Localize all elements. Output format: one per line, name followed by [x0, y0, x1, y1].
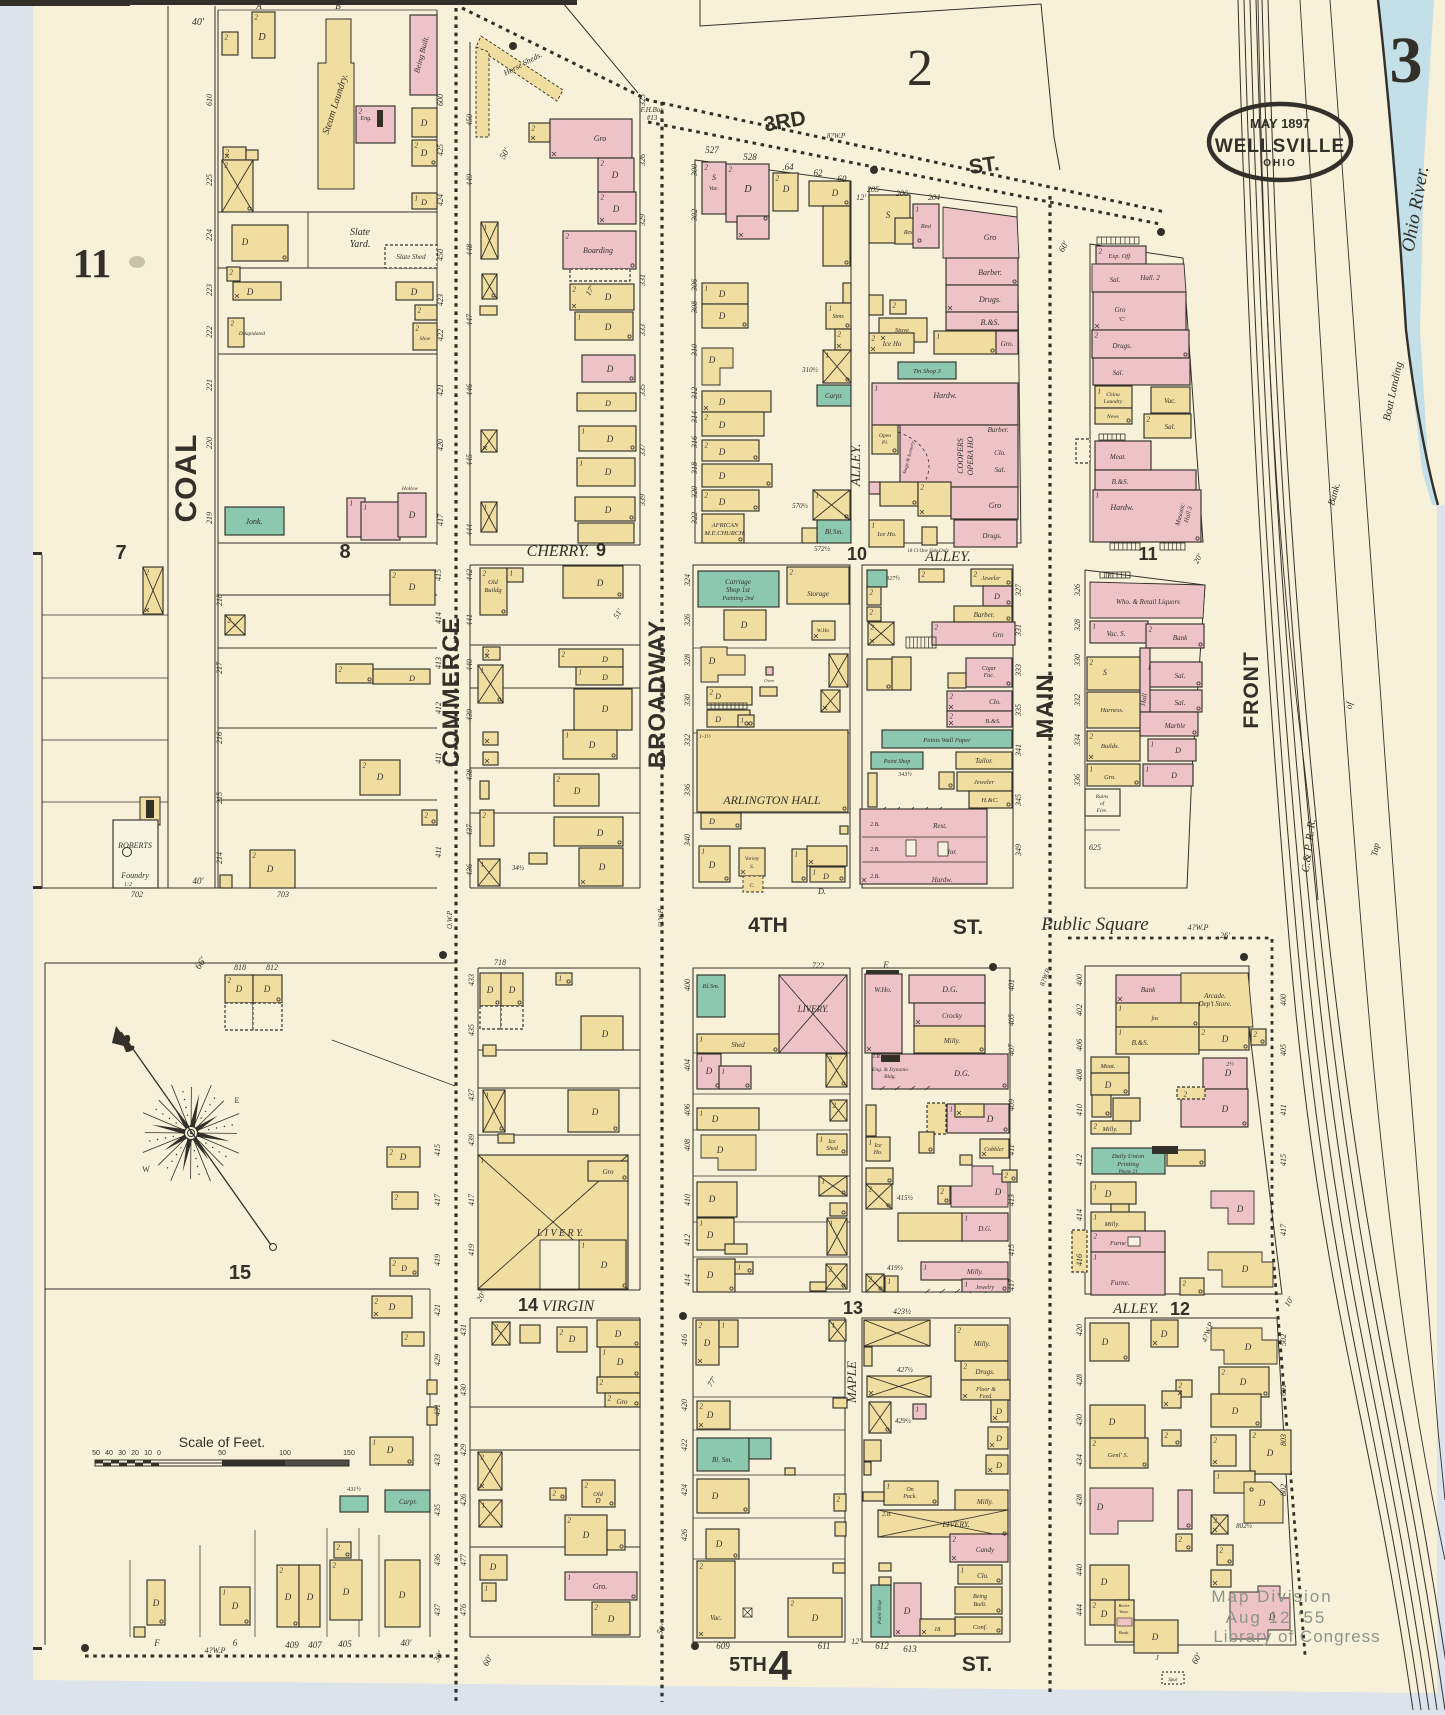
svg-text:407: 407: [308, 1640, 322, 1650]
svg-text:12: 12: [1170, 1299, 1190, 1319]
svg-text:D: D: [1151, 1632, 1159, 1642]
svg-text:1: 1: [1094, 1184, 1098, 1192]
svg-text:ARLINGTON HALL: ARLINGTON HALL: [722, 793, 821, 807]
svg-text:2: 2: [390, 1149, 394, 1157]
svg-text:1: 1: [481, 1157, 485, 1165]
svg-text:Tailor.: Tailor.: [975, 757, 993, 765]
svg-text:1: 1: [486, 1092, 490, 1100]
svg-text:1: 1: [700, 1110, 704, 1118]
svg-text:D: D: [1241, 1264, 1249, 1274]
svg-text:2: 2: [230, 269, 234, 277]
svg-text:450: 450: [465, 114, 474, 126]
svg-text:D: D: [1160, 1329, 1168, 1339]
svg-text:Eng. & Dynamo: Eng. & Dynamo: [871, 1067, 908, 1073]
svg-text:400: 400: [1075, 974, 1084, 986]
svg-text:Genl' S.: Genl' S.: [1108, 1452, 1129, 1459]
svg-text:1: 1: [482, 1502, 486, 1510]
svg-text:Spur: Spur: [1168, 1678, 1178, 1683]
svg-text:349: 349: [1014, 844, 1023, 857]
svg-text:D: D: [616, 1357, 624, 1367]
svg-text:601: 601: [1279, 1384, 1288, 1396]
svg-text:2: 2: [1222, 1369, 1226, 1377]
svg-text:60: 60: [838, 174, 848, 184]
svg-text:408: 408: [1075, 1069, 1084, 1081]
svg-text:D: D: [1224, 1068, 1232, 1078]
svg-text:330: 330: [683, 694, 692, 707]
svg-text:50: 50: [218, 1450, 226, 1457]
svg-text:2: 2: [869, 1276, 873, 1284]
svg-text:336: 336: [683, 784, 692, 797]
svg-text:D: D: [604, 322, 612, 332]
svg-text:314: 314: [690, 411, 699, 424]
svg-text:ST.: ST.: [962, 1653, 992, 1676]
svg-text:D: D: [573, 786, 581, 796]
svg-text:1: 1: [1148, 664, 1152, 672]
svg-text:414: 414: [434, 612, 443, 624]
svg-text:2: 2: [1149, 626, 1153, 634]
svg-text:Yard.: Yard.: [350, 239, 371, 250]
svg-text:449: 449: [465, 174, 474, 186]
svg-text:1: 1: [872, 522, 876, 530]
svg-text:331: 331: [1014, 624, 1023, 637]
svg-text:2: 2: [481, 1454, 485, 1462]
svg-text:ST.: ST.: [967, 152, 1000, 179]
svg-text:419: 419: [433, 1254, 442, 1266]
svg-text:300: 300: [690, 164, 699, 177]
svg-text:D: D: [410, 287, 418, 297]
svg-text:Jonk.: Jonk.: [245, 517, 262, 526]
svg-text:Tin Shop 3: Tin Shop 3: [913, 368, 942, 375]
svg-text:334: 334: [1073, 734, 1082, 747]
svg-text:1: 1: [1119, 1029, 1123, 1037]
svg-text:Barber.: Barber.: [978, 268, 1002, 277]
svg-text:D: D: [486, 985, 494, 995]
svg-text:Milly.: Milly.: [976, 1498, 993, 1506]
svg-text:Bank: Bank: [1173, 634, 1188, 642]
svg-text:Furne: Furne: [1109, 1240, 1126, 1247]
svg-text:411: 411: [1279, 1104, 1288, 1115]
svg-text:14: 14: [518, 1295, 538, 1315]
svg-text:2: 2: [146, 569, 150, 577]
svg-text:D: D: [235, 984, 243, 994]
svg-text:D: D: [241, 237, 249, 247]
svg-text:D: D: [708, 656, 716, 666]
svg-text:11: 11: [1138, 544, 1157, 564]
svg-text:COMMERCE: COMMERCE: [438, 617, 465, 768]
svg-text:S: S: [886, 210, 891, 220]
svg-text:415: 415: [433, 1144, 442, 1156]
svg-text:Gro: Gro: [989, 501, 1002, 510]
svg-text:D: D: [1100, 1609, 1108, 1619]
svg-text:435: 435: [433, 1504, 442, 1516]
svg-text:2: 2: [974, 571, 978, 579]
svg-text:D: D: [1170, 771, 1177, 780]
svg-text:.64: .64: [782, 162, 794, 172]
svg-text:Harness.: Harness.: [1099, 707, 1124, 714]
svg-text:219: 219: [205, 512, 214, 524]
svg-text:Oven: Oven: [764, 678, 774, 683]
svg-text:6: 6: [233, 1638, 238, 1648]
svg-text:MAIN: MAIN: [1032, 673, 1059, 738]
svg-text:2: 2: [393, 572, 397, 580]
svg-text:D: D: [386, 1445, 394, 1455]
svg-text:2: 2: [1184, 1091, 1188, 1099]
svg-text:2: 2: [1090, 733, 1094, 741]
svg-text:Sal.: Sal.: [1175, 699, 1186, 707]
svg-text:D: D: [703, 1338, 711, 1348]
svg-text:415½: 415½: [897, 1194, 914, 1202]
svg-text:610: 610: [205, 94, 214, 106]
svg-text:335: 335: [638, 384, 647, 397]
svg-text:430: 430: [459, 1384, 468, 1396]
svg-text:8: 8: [339, 541, 350, 563]
svg-text:L I V E R Y.: L I V E R Y.: [536, 1228, 584, 1239]
svg-text:Gro.: Gro.: [1104, 774, 1116, 781]
svg-text:D: D: [995, 1434, 1002, 1443]
svg-text:Gro: Gro: [984, 233, 997, 242]
svg-text:2: 2: [729, 166, 733, 174]
svg-text:2.B.: 2.B.: [870, 874, 880, 880]
svg-text:2: 2: [1183, 1280, 1187, 1288]
svg-text:1: 1: [832, 1322, 836, 1330]
svg-text:2: 2: [416, 325, 420, 333]
svg-text:40': 40': [192, 17, 205, 28]
svg-text:1: 1: [700, 1036, 704, 1044]
svg-text:2: 2: [870, 589, 874, 597]
svg-text:343½: 343½: [897, 771, 912, 778]
svg-text:2: 2: [1090, 659, 1094, 667]
svg-text:D: D: [718, 447, 726, 457]
svg-text:H.&C.: H.&C.: [980, 797, 999, 804]
svg-text:409: 409: [285, 1640, 299, 1650]
svg-text:1: 1: [829, 305, 833, 313]
svg-text:Milly.: Milly.: [943, 1037, 960, 1045]
svg-text:2: 2: [585, 1482, 589, 1490]
svg-text:Gro.: Gro.: [593, 1582, 608, 1591]
svg-text:ST.: ST.: [953, 916, 983, 939]
svg-text:D: D: [582, 1530, 590, 1540]
svg-text:D: D: [706, 1410, 714, 1420]
svg-text:417: 417: [1279, 1223, 1288, 1236]
svg-text:2: 2: [253, 852, 257, 860]
svg-text:218: 218: [215, 594, 224, 606]
svg-text:423½: 423½: [893, 1307, 911, 1316]
svg-text:Pl.: Pl.: [881, 440, 888, 446]
svg-text:D: D: [596, 578, 604, 588]
svg-text:429: 429: [459, 1444, 468, 1456]
svg-text:Rest: Rest: [920, 224, 932, 230]
svg-text:326: 326: [1073, 584, 1082, 597]
svg-text:2: 2: [375, 1298, 379, 1306]
svg-text:328: 328: [1073, 619, 1082, 632]
svg-text:11: 11: [73, 240, 112, 286]
svg-text:2: 2: [1147, 416, 1151, 424]
svg-text:439: 439: [465, 709, 474, 721]
svg-text:417: 417: [433, 1193, 442, 1206]
svg-text:302: 302: [690, 209, 699, 222]
svg-text:D: D: [1096, 1502, 1104, 1512]
svg-text:D: D: [263, 984, 271, 994]
svg-text:2: 2: [941, 1188, 945, 1196]
svg-text:2: 2: [699, 1322, 703, 1330]
svg-text:1: 1: [485, 1585, 489, 1593]
svg-text:7: 7: [115, 542, 126, 564]
svg-text:326: 326: [638, 154, 647, 167]
svg-text:B.&S.: B.&S.: [985, 718, 1001, 725]
svg-text:OPERA HO: OPERA HO: [966, 436, 975, 475]
svg-text:2: 2: [837, 1496, 841, 1504]
svg-text:4?W.P: 4?W.P: [205, 1646, 226, 1655]
svg-text:2: 2: [425, 812, 429, 820]
svg-text:2: 2: [1095, 332, 1099, 340]
svg-text:Phone 21: Phone 21: [1117, 1170, 1137, 1175]
svg-text:1: 1: [364, 504, 368, 512]
svg-text:D: D: [604, 467, 612, 477]
svg-text:426: 426: [459, 1494, 468, 1506]
svg-text:1: 1: [510, 570, 514, 578]
svg-text:613: 613: [903, 1644, 917, 1654]
svg-text:1: 1: [916, 1406, 920, 1414]
svg-text:570½: 570½: [792, 502, 809, 510]
svg-text:China: China: [1106, 392, 1120, 398]
svg-text:2.B.: 2.B.: [870, 822, 880, 828]
svg-text:414: 414: [683, 1274, 692, 1286]
svg-text:3: 3: [1390, 24, 1423, 97]
svg-text:416: 416: [1075, 1254, 1084, 1266]
svg-text:O.W.P: O.W.P: [657, 908, 665, 927]
svg-text:Builds.: Builds.: [1101, 743, 1120, 750]
svg-text:417: 417: [467, 1193, 476, 1206]
svg-text:D.G.: D.G.: [941, 985, 958, 994]
svg-text:2: 2: [907, 40, 933, 97]
svg-text:Dilapidated: Dilapidated: [238, 331, 266, 337]
svg-text:431½: 431½: [347, 1486, 361, 1493]
svg-text:1: 1: [888, 1278, 892, 1286]
svg-text:1: 1: [722, 1068, 726, 1076]
svg-text:Candy: Candy: [976, 1546, 995, 1554]
svg-text:S.: S.: [750, 864, 754, 870]
svg-text:Rest.: Rest.: [932, 822, 947, 830]
svg-text:310½: 310½: [801, 366, 819, 374]
svg-text:Scale of Feet.: Scale of Feet.: [179, 1434, 265, 1450]
svg-text:Sal.: Sal.: [1175, 672, 1186, 680]
svg-text:417: 417: [1007, 1278, 1016, 1291]
svg-text:1: 1: [965, 1281, 969, 1289]
svg-text:Hardw.: Hardw.: [931, 876, 953, 884]
svg-text:320: 320: [690, 486, 699, 499]
svg-text:572½: 572½: [814, 545, 831, 553]
svg-text:D: D: [1101, 1337, 1109, 1347]
svg-text:206: 206: [896, 189, 908, 198]
svg-text:404: 404: [683, 1059, 692, 1071]
svg-text:1: 1: [582, 428, 586, 436]
svg-text:Built.: Built.: [973, 1602, 986, 1608]
svg-text:50: 50: [92, 1450, 100, 1457]
svg-text:D: D: [740, 620, 748, 630]
svg-text:15: 15: [229, 1262, 251, 1284]
svg-text:Sal.: Sal.: [1110, 276, 1121, 284]
svg-text:Drugs.: Drugs.: [978, 295, 1001, 304]
svg-text:I.B.: I.B.: [872, 1054, 881, 1060]
svg-text:D: D: [1104, 1080, 1112, 1090]
svg-text:Barber.: Barber.: [988, 426, 1009, 434]
svg-text:2: 2: [710, 689, 714, 697]
svg-text:ROBERTS: ROBERTS: [117, 841, 152, 850]
svg-text:Furne.: Furne.: [1110, 1279, 1130, 1287]
svg-text:D: D: [715, 1539, 723, 1549]
svg-text:Milly.: Milly.: [1104, 1221, 1120, 1228]
svg-text:B.&S.: B.&S.: [980, 318, 999, 327]
svg-text:D: D: [489, 1562, 497, 1572]
svg-text:Open: Open: [879, 433, 891, 439]
svg-text:D: D: [811, 1613, 819, 1623]
svg-text:M.E.CHURCH.: M.E.CHURCH.: [704, 530, 746, 537]
svg-text:438: 438: [1075, 1494, 1084, 1506]
svg-text:D: D: [600, 1260, 608, 1270]
svg-text:1: 1: [702, 848, 706, 856]
svg-text:400: 400: [683, 979, 692, 991]
svg-text:703: 703: [277, 890, 289, 899]
svg-text:420: 420: [1075, 1324, 1084, 1336]
svg-text:2: 2: [1093, 1440, 1097, 1448]
svg-text:405: 405: [1007, 1014, 1016, 1026]
svg-text:D: D: [822, 872, 829, 881]
svg-text:Better: Better: [1119, 1603, 1130, 1608]
svg-text:S: S: [1103, 668, 1107, 677]
svg-text:2: 2: [405, 1334, 409, 1342]
svg-text:1: 1: [950, 1106, 954, 1114]
svg-text:fos: fos: [1151, 1015, 1159, 1022]
svg-text:416: 416: [680, 1334, 689, 1346]
svg-text:MAY 1897: MAY 1897: [1250, 116, 1310, 131]
svg-text:ALLEY.: ALLEY.: [1112, 1301, 1159, 1317]
svg-text:2: 2: [1094, 1123, 1098, 1131]
svg-text:F: F: [153, 1638, 160, 1648]
svg-text:415: 415: [1279, 1154, 1288, 1166]
svg-text:D: D: [1100, 1577, 1108, 1587]
svg-text:2: 2: [573, 286, 577, 294]
svg-text:Bl.Sm.: Bl.Sm.: [703, 983, 720, 990]
svg-text:D: D: [718, 497, 726, 507]
svg-text:D: D: [601, 673, 608, 682]
svg-text:Storage: Storage: [807, 590, 829, 598]
svg-text:D: D: [591, 1107, 599, 1117]
svg-text:331: 331: [638, 274, 647, 287]
svg-text:327½: 327½: [885, 575, 900, 582]
svg-text:Drugs.: Drugs.: [974, 1368, 995, 1376]
svg-text:1: 1: [484, 504, 488, 512]
svg-text:D: D: [508, 985, 516, 995]
svg-text:2: 2: [557, 776, 561, 784]
svg-text:419: 419: [467, 1244, 476, 1256]
svg-text:Shop 1st: Shop 1st: [726, 586, 751, 594]
svg-text:421: 421: [433, 1304, 442, 1316]
svg-text:2: 2: [333, 1562, 337, 1570]
svg-text:COAL: COAL: [170, 434, 203, 523]
svg-text:1: 1: [1217, 1473, 1221, 1481]
svg-text:'C': 'C': [1119, 317, 1126, 323]
svg-text:Carpr.: Carpr.: [399, 1498, 417, 1506]
svg-text:217: 217: [215, 661, 224, 674]
svg-text:2: 2: [495, 1324, 499, 1332]
svg-text:1: 1: [875, 385, 879, 393]
svg-text:2: 2: [228, 977, 232, 985]
svg-text:2: 2: [700, 1403, 704, 1411]
svg-text:D: D: [420, 148, 428, 158]
svg-text:803: 803: [1279, 1434, 1288, 1446]
svg-text:D: D: [400, 1264, 407, 1273]
svg-text:Boarding: Boarding: [583, 246, 613, 255]
svg-text:OHIO: OHIO: [1263, 158, 1297, 169]
svg-text:Ruins: Ruins: [1095, 794, 1109, 800]
svg-text:Buildg: Buildg: [484, 587, 502, 594]
svg-text:1: 1: [700, 1056, 704, 1064]
svg-text:345: 345: [1014, 794, 1023, 807]
svg-text:2: 2: [1179, 1536, 1183, 1544]
svg-text:1: 1: [830, 1220, 834, 1228]
svg-text:D: D: [594, 1497, 600, 1505]
svg-text:Ho.: Ho.: [873, 1150, 883, 1156]
svg-text:2: 2: [553, 1490, 557, 1498]
svg-text:Slate: Slate: [350, 227, 371, 238]
svg-text:1: 1: [916, 206, 920, 214]
svg-text:Milly.: Milly.: [1102, 1126, 1118, 1133]
svg-text:D: D: [604, 505, 612, 515]
svg-text:News: News: [1106, 414, 1119, 420]
svg-text:34½: 34½: [511, 864, 525, 872]
svg-text:332: 332: [683, 734, 692, 747]
svg-text:E: E: [882, 960, 889, 970]
svg-text:Gro: Gro: [616, 1398, 628, 1406]
svg-text:2.B.: 2.B.: [882, 1512, 892, 1518]
svg-text:Hall. 2: Hall. 2: [1139, 274, 1160, 282]
svg-text:LIVERY.: LIVERY.: [941, 1520, 970, 1529]
svg-text:B.&S.: B.&S.: [1132, 1039, 1149, 1047]
svg-text:411: 411: [1007, 1144, 1016, 1155]
svg-text:2: 2: [1214, 1437, 1218, 1445]
svg-text:2: 2: [339, 666, 343, 674]
svg-text:430: 430: [1075, 1414, 1084, 1426]
svg-text:D: D: [706, 1270, 714, 1280]
svg-text:2: 2: [483, 570, 487, 578]
svg-text:409: 409: [1007, 1099, 1016, 1111]
svg-text:Bldg.: Bldg.: [884, 1074, 896, 1080]
svg-text:D: D: [342, 1587, 350, 1597]
svg-text:2: 2: [225, 162, 229, 170]
svg-text:433: 433: [467, 974, 476, 986]
svg-text:D: D: [408, 674, 415, 683]
svg-text:2: 2: [872, 335, 876, 343]
svg-text:431: 431: [433, 1404, 442, 1416]
svg-text:Hardw.: Hardw.: [1109, 503, 1133, 512]
svg-text:1: 1: [1098, 388, 1102, 396]
svg-text:D: D: [1174, 746, 1181, 755]
svg-text:13: 13: [843, 1298, 863, 1318]
svg-text:D: D: [376, 772, 384, 782]
svg-text:1: 1: [741, 717, 745, 725]
svg-text:2: 2: [532, 125, 536, 133]
svg-text:4: 4: [768, 1642, 792, 1689]
svg-text:718: 718: [494, 958, 506, 967]
svg-text:D: D: [257, 32, 266, 43]
svg-text:1: 1: [603, 1349, 607, 1357]
svg-text:2: 2: [395, 1194, 399, 1202]
svg-text:Crocky: Crocky: [942, 1012, 963, 1020]
svg-text:Vac.: Vac.: [710, 1614, 722, 1622]
svg-text:Feed.: Feed.: [978, 1394, 993, 1400]
svg-text:448: 448: [465, 244, 474, 256]
svg-text:D: D: [994, 1187, 1002, 1197]
